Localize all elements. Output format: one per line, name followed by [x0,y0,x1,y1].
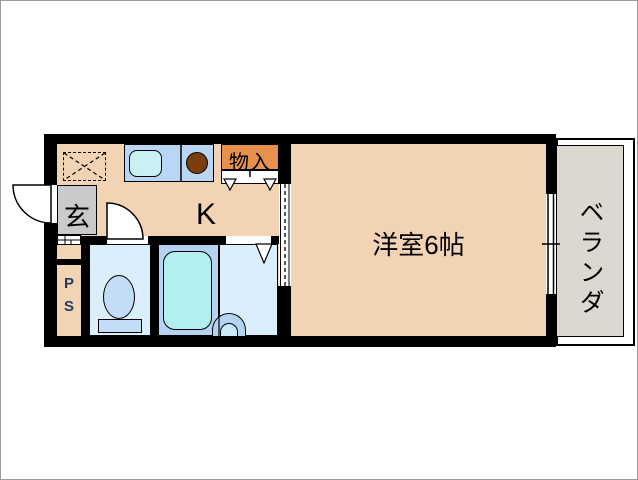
toilet-tank-icon [98,319,142,333]
entrance-label: 玄 [57,197,97,234]
kitchen-sink-icon [129,150,162,177]
wall-toilet-bath [151,244,158,336]
wall-kitchen-row-2 [148,236,226,244]
wall-right-upper [546,134,556,194]
main-room-label: 洋室6帖 [291,225,546,262]
wall-top [44,134,556,144]
wall-kitchen-row-3 [271,236,279,244]
entrance-door-gap [44,185,57,223]
wall-ps-top [57,259,89,265]
floorplan-canvas: 玄 K 物入 洋室6帖 ベランダ P S [0,0,638,480]
wall-mid-upper [278,144,291,184]
wall-ps-right [81,244,89,336]
veranda-window-gap [546,194,556,294]
veranda-label: ベランダ [561,191,619,326]
toilet-bowl-icon [103,275,135,319]
wall-right-lower [546,294,556,347]
room-opening-gap [279,184,291,286]
kitchen-label: K [186,198,226,232]
wall-left-lower [44,223,57,347]
bathtub-icon [163,251,212,330]
storage-label: 物入 [221,146,279,175]
wall-left-upper [44,134,57,185]
bath-door-gap [226,236,271,244]
refrigerator-space [63,152,106,181]
entrance-step [57,235,81,245]
stove-burner-icon [186,152,208,174]
toilet-door-gap [107,236,148,244]
pipe-space-label: P S [57,273,81,318]
washbasin-bowl-icon [220,323,238,336]
wall-bottom [44,336,556,347]
wall-mid-lower [278,286,291,336]
